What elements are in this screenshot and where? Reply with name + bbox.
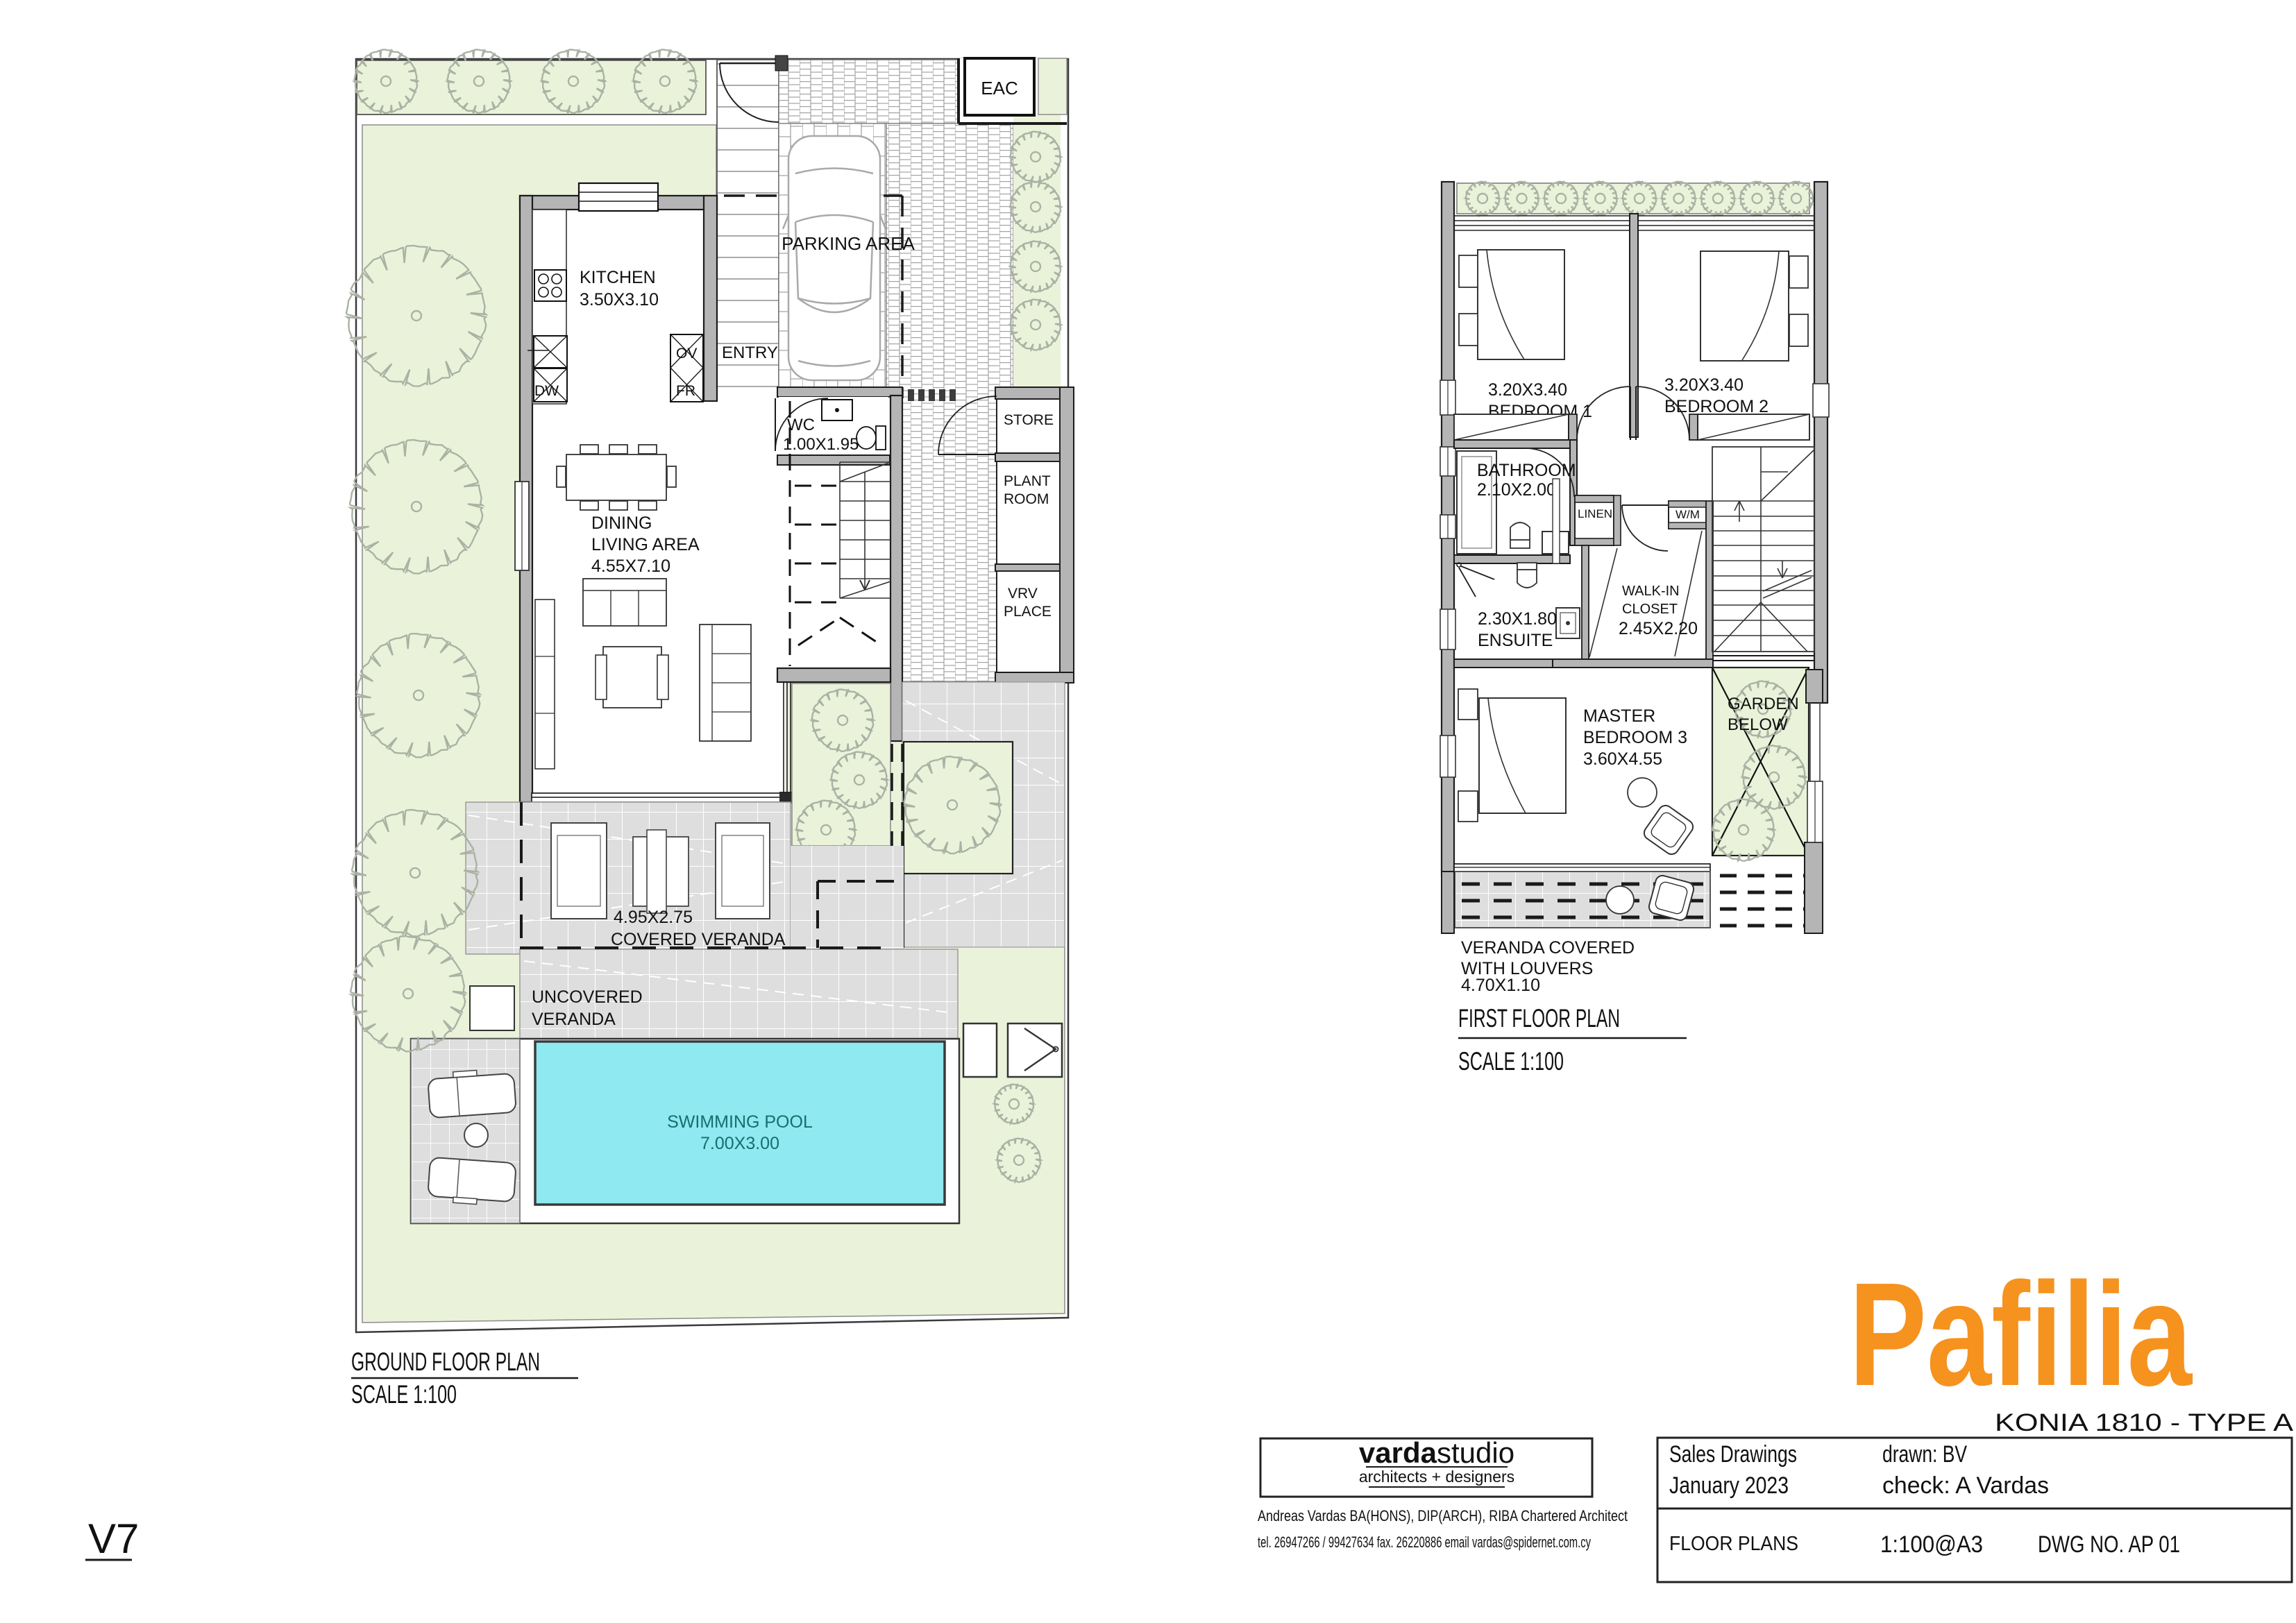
svg-text:FLOOR PLANS: FLOOR PLANS [1669, 1533, 1798, 1555]
svg-text:2.45X2.20: 2.45X2.20 [1619, 619, 1698, 638]
svg-text:VRV: VRV [1008, 586, 1038, 602]
svg-text:UNCOVERED: UNCOVERED [532, 987, 643, 1007]
svg-text:Andreas Vardas BA(HONS), DIP(A: Andreas Vardas BA(HONS), DIP(ARCH), RIBA… [1258, 1507, 1628, 1524]
svg-text:OV: OV [676, 346, 697, 362]
svg-text:LINEN: LINEN [1578, 507, 1612, 520]
svg-text:4.55X7.10: 4.55X7.10 [591, 556, 670, 576]
svg-text:2.30X1.80: 2.30X1.80 [1478, 609, 1557, 629]
svg-text:DINING: DINING [591, 513, 652, 533]
svg-text:LIVING AREA: LIVING AREA [591, 535, 700, 554]
svg-text:ENTRY: ENTRY [722, 343, 778, 362]
svg-text:VERANDA: VERANDA [532, 1010, 616, 1029]
svg-text:3.60X4.55: 3.60X4.55 [1583, 749, 1662, 769]
svg-text:7.00X3.00: 7.00X3.00 [700, 1134, 779, 1153]
svg-text:BELOW: BELOW [1728, 715, 1788, 734]
svg-text:check: A Vardas: check: A Vardas [1882, 1472, 2049, 1499]
svg-text:4.95X2.75: 4.95X2.75 [614, 908, 693, 927]
svg-text:GROUND FLOOR PLAN: GROUND FLOOR PLAN [351, 1348, 540, 1376]
svg-text:W/M: W/M [1675, 508, 1700, 521]
svg-text:DW: DW [534, 383, 559, 399]
svg-text:3.20X3.40: 3.20X3.40 [1488, 380, 1567, 400]
svg-text:V7: V7 [88, 1515, 139, 1562]
svg-text:2.10X2.00: 2.10X2.00 [1477, 480, 1556, 500]
svg-text:4.70X1.10: 4.70X1.10 [1461, 976, 1540, 995]
svg-text:SCALE 1:100: SCALE 1:100 [351, 1380, 457, 1409]
svg-text:FR: FR [676, 383, 695, 399]
svg-text:January 2023: January 2023 [1669, 1472, 1789, 1499]
svg-text:STORE: STORE [1004, 412, 1054, 428]
svg-text:drawn: BV: drawn: BV [1882, 1441, 1967, 1468]
svg-text:MASTER: MASTER [1583, 706, 1655, 726]
svg-text:BEDROOM 2: BEDROOM 2 [1664, 397, 1769, 416]
svg-text:GARDEN: GARDEN [1728, 695, 1799, 713]
svg-text:CLOSET: CLOSET [1622, 602, 1678, 617]
svg-text:COVERED VERANDA: COVERED VERANDA [611, 930, 786, 949]
svg-text:ROOM: ROOM [1004, 491, 1049, 507]
svg-text:FIRST FLOOR PLAN: FIRST FLOOR PLAN [1458, 1004, 1620, 1033]
svg-text:Sales Drawings: Sales Drawings [1669, 1441, 1797, 1468]
svg-text:KITCHEN: KITCHEN [580, 268, 656, 287]
svg-text:Pafilia: Pafilia [1849, 1252, 2193, 1416]
svg-text:PARKING AREA: PARKING AREA [782, 233, 915, 254]
svg-text:SCALE 1:100: SCALE 1:100 [1458, 1047, 1564, 1076]
svg-text:WC: WC [787, 416, 815, 434]
svg-text:1.00X1.95: 1.00X1.95 [783, 435, 859, 454]
svg-text:3.50X3.10: 3.50X3.10 [580, 290, 659, 309]
svg-text:BEDROOM 3: BEDROOM 3 [1583, 728, 1687, 747]
svg-text:tel. 26947266 / 99427634 fax.: tel. 26947266 / 99427634 fax. 26220886 e… [1258, 1533, 1591, 1551]
svg-text:WALK-IN: WALK-IN [1622, 584, 1680, 599]
svg-text:PLANT: PLANT [1004, 473, 1051, 489]
svg-text:ENSUITE: ENSUITE [1478, 631, 1553, 650]
svg-text:SWIMMING POOL: SWIMMING POOL [667, 1112, 813, 1132]
svg-text:1:100@A3: 1:100@A3 [1880, 1531, 1983, 1558]
svg-text:VERANDA COVERED: VERANDA COVERED [1461, 938, 1635, 958]
svg-text:KONIA 1810 - TYPE A: KONIA 1810 - TYPE A [1995, 1409, 2294, 1436]
svg-text:architects + designers: architects + designers [1359, 1468, 1514, 1486]
svg-text:DWG NO. AP 01: DWG NO. AP 01 [2038, 1531, 2180, 1558]
svg-text:3.20X3.40: 3.20X3.40 [1664, 375, 1744, 395]
svg-text:EAC: EAC [981, 78, 1018, 99]
svg-text:PLACE: PLACE [1004, 604, 1052, 620]
svg-text:vardastudio: vardastudio [1359, 1436, 1514, 1469]
